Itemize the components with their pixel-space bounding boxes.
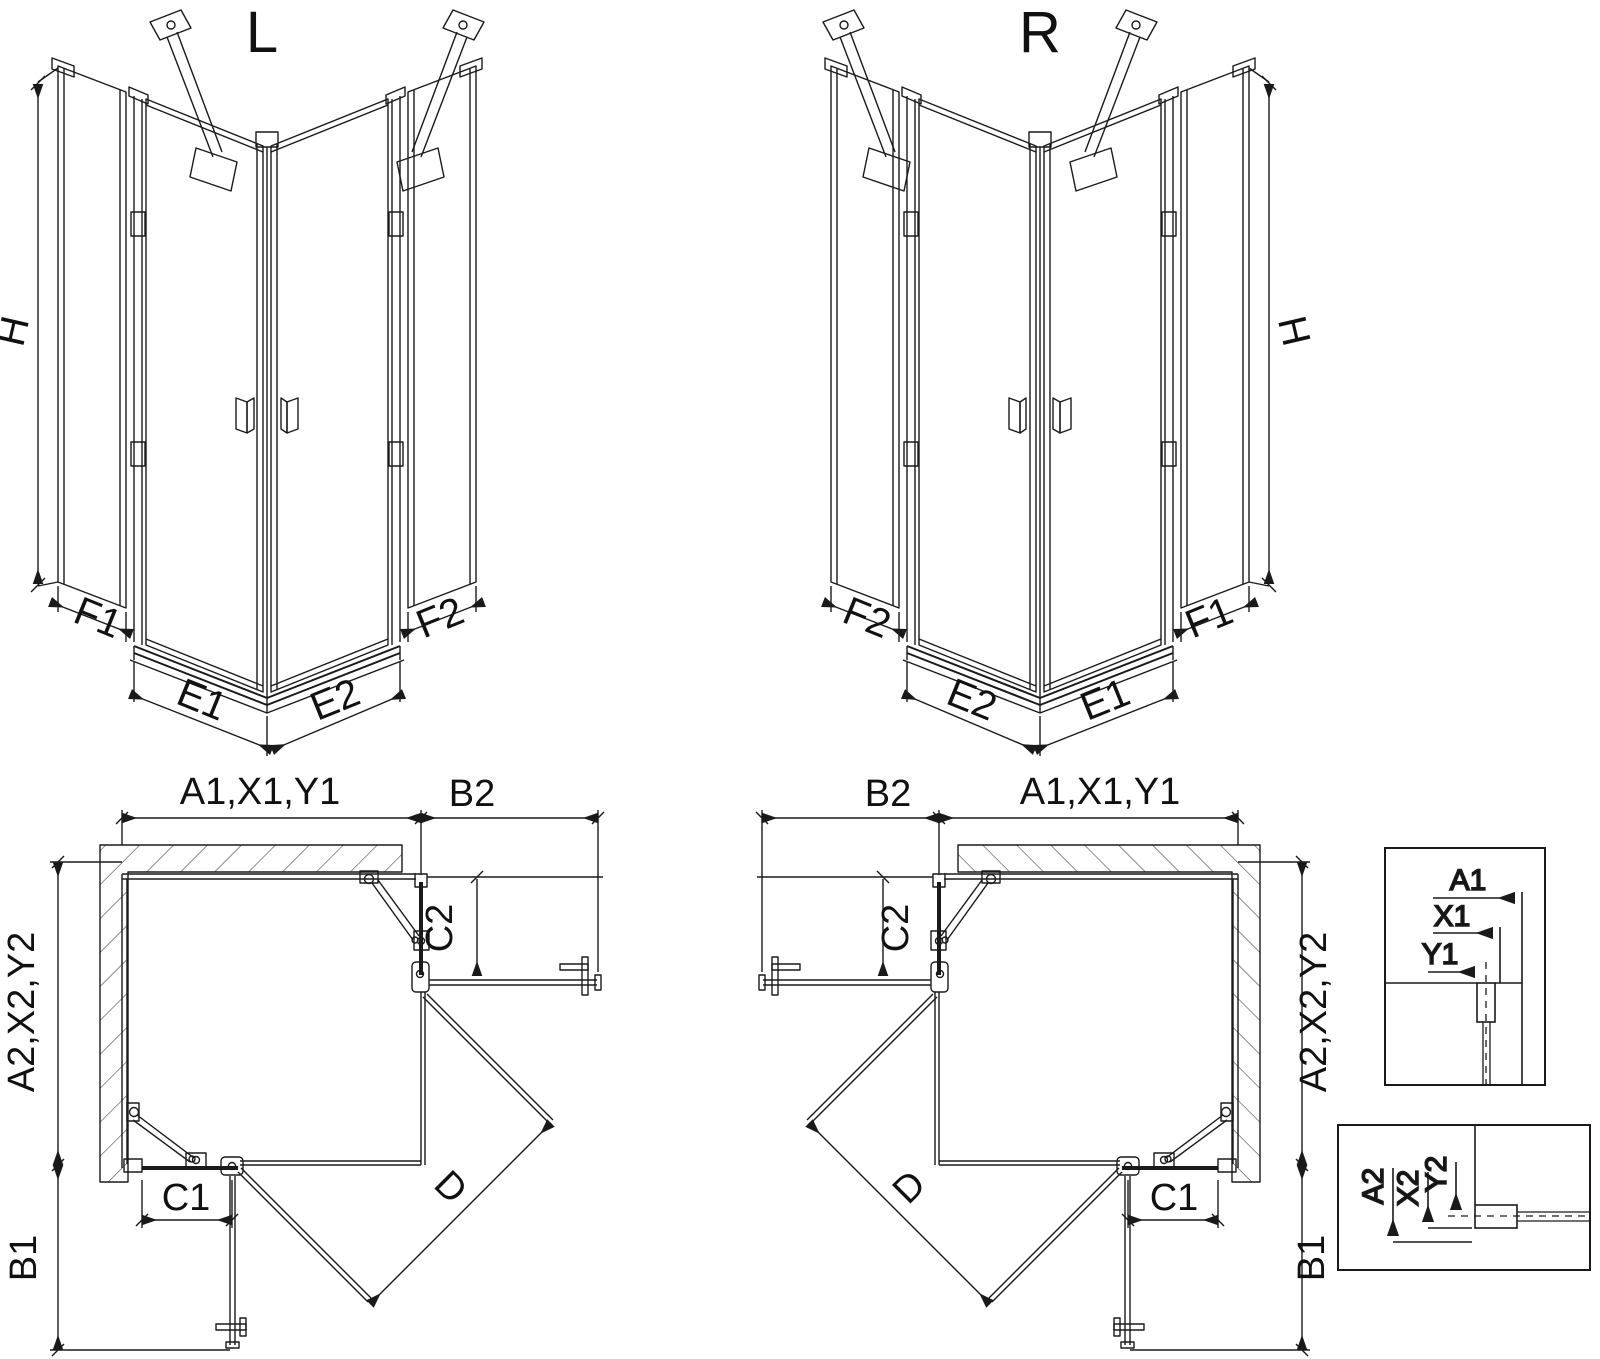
plan-right-label-b1: B1 (1291, 1235, 1333, 1281)
plan-right-label-c1: C1 (1150, 1177, 1199, 1219)
plan-left-label-c1: C1 (162, 1177, 211, 1219)
detail-bottom-label-y2: Y2 (1420, 1156, 1453, 1193)
detail-top-label-y1: Y1 (1422, 938, 1459, 971)
plan-left-label-c2: C2 (419, 904, 461, 953)
plan-left-label-b2: B2 (449, 773, 495, 815)
detail-bottom-label-a2: A2 (1357, 1168, 1390, 1205)
plan-left-label-a2: A2,X2,Y2 (1, 932, 43, 1093)
plan-left-label-b1: B1 (3, 1235, 45, 1281)
plan-right-label-b2: B2 (865, 773, 911, 815)
plan-left-label-a1: A1,X1,Y1 (180, 771, 341, 813)
plan-right-label-a2: A2,X2,Y2 (1293, 932, 1335, 1093)
plan-right-label-c2: C2 (875, 904, 917, 953)
plan-right-label-a1: A1,X1,Y1 (1020, 771, 1181, 813)
technical-drawing-sheet: L H F1 E1 E2 F2 R H F1 E1 E2 F2 A1,X1,Y1… (0, 0, 1600, 1359)
title-left: L (246, 0, 278, 65)
drawing-canvas: L H F1 E1 E2 F2 R H F1 E1 E2 F2 A1,X1,Y1… (0, 0, 1600, 1359)
detail-top-label-x1: X1 (1434, 900, 1471, 933)
sheet-background (0, 0, 1600, 1359)
title-right: R (1019, 0, 1061, 65)
detail-top-label-a1: A1 (1450, 864, 1487, 897)
